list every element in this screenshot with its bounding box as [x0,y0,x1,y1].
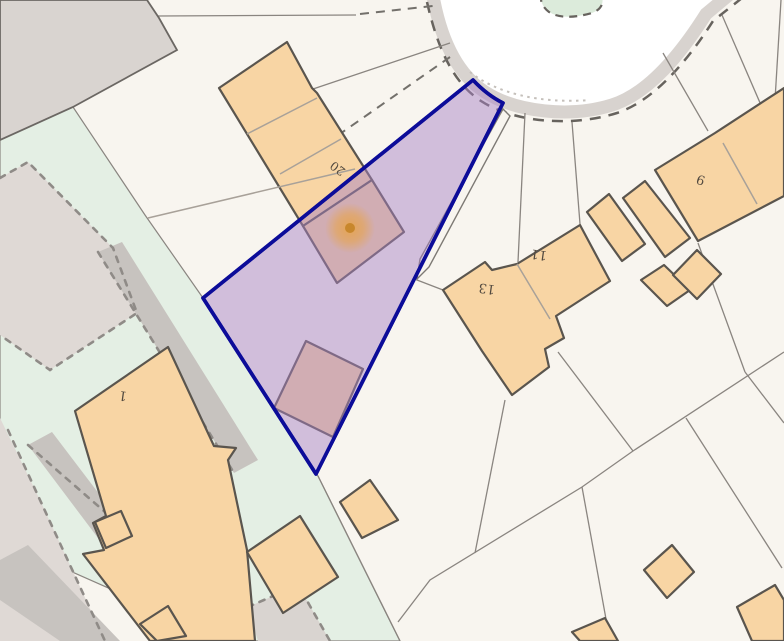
property-marker[interactable] [325,203,375,253]
marker-dot[interactable] [345,223,355,233]
map-viewport[interactable]: 20 13 11 9 1 [0,0,784,641]
cadastral-map[interactable]: 20 13 11 9 1 [0,0,784,641]
plot-label-11: 11 [530,245,548,262]
plot-label-13: 13 [478,279,496,296]
